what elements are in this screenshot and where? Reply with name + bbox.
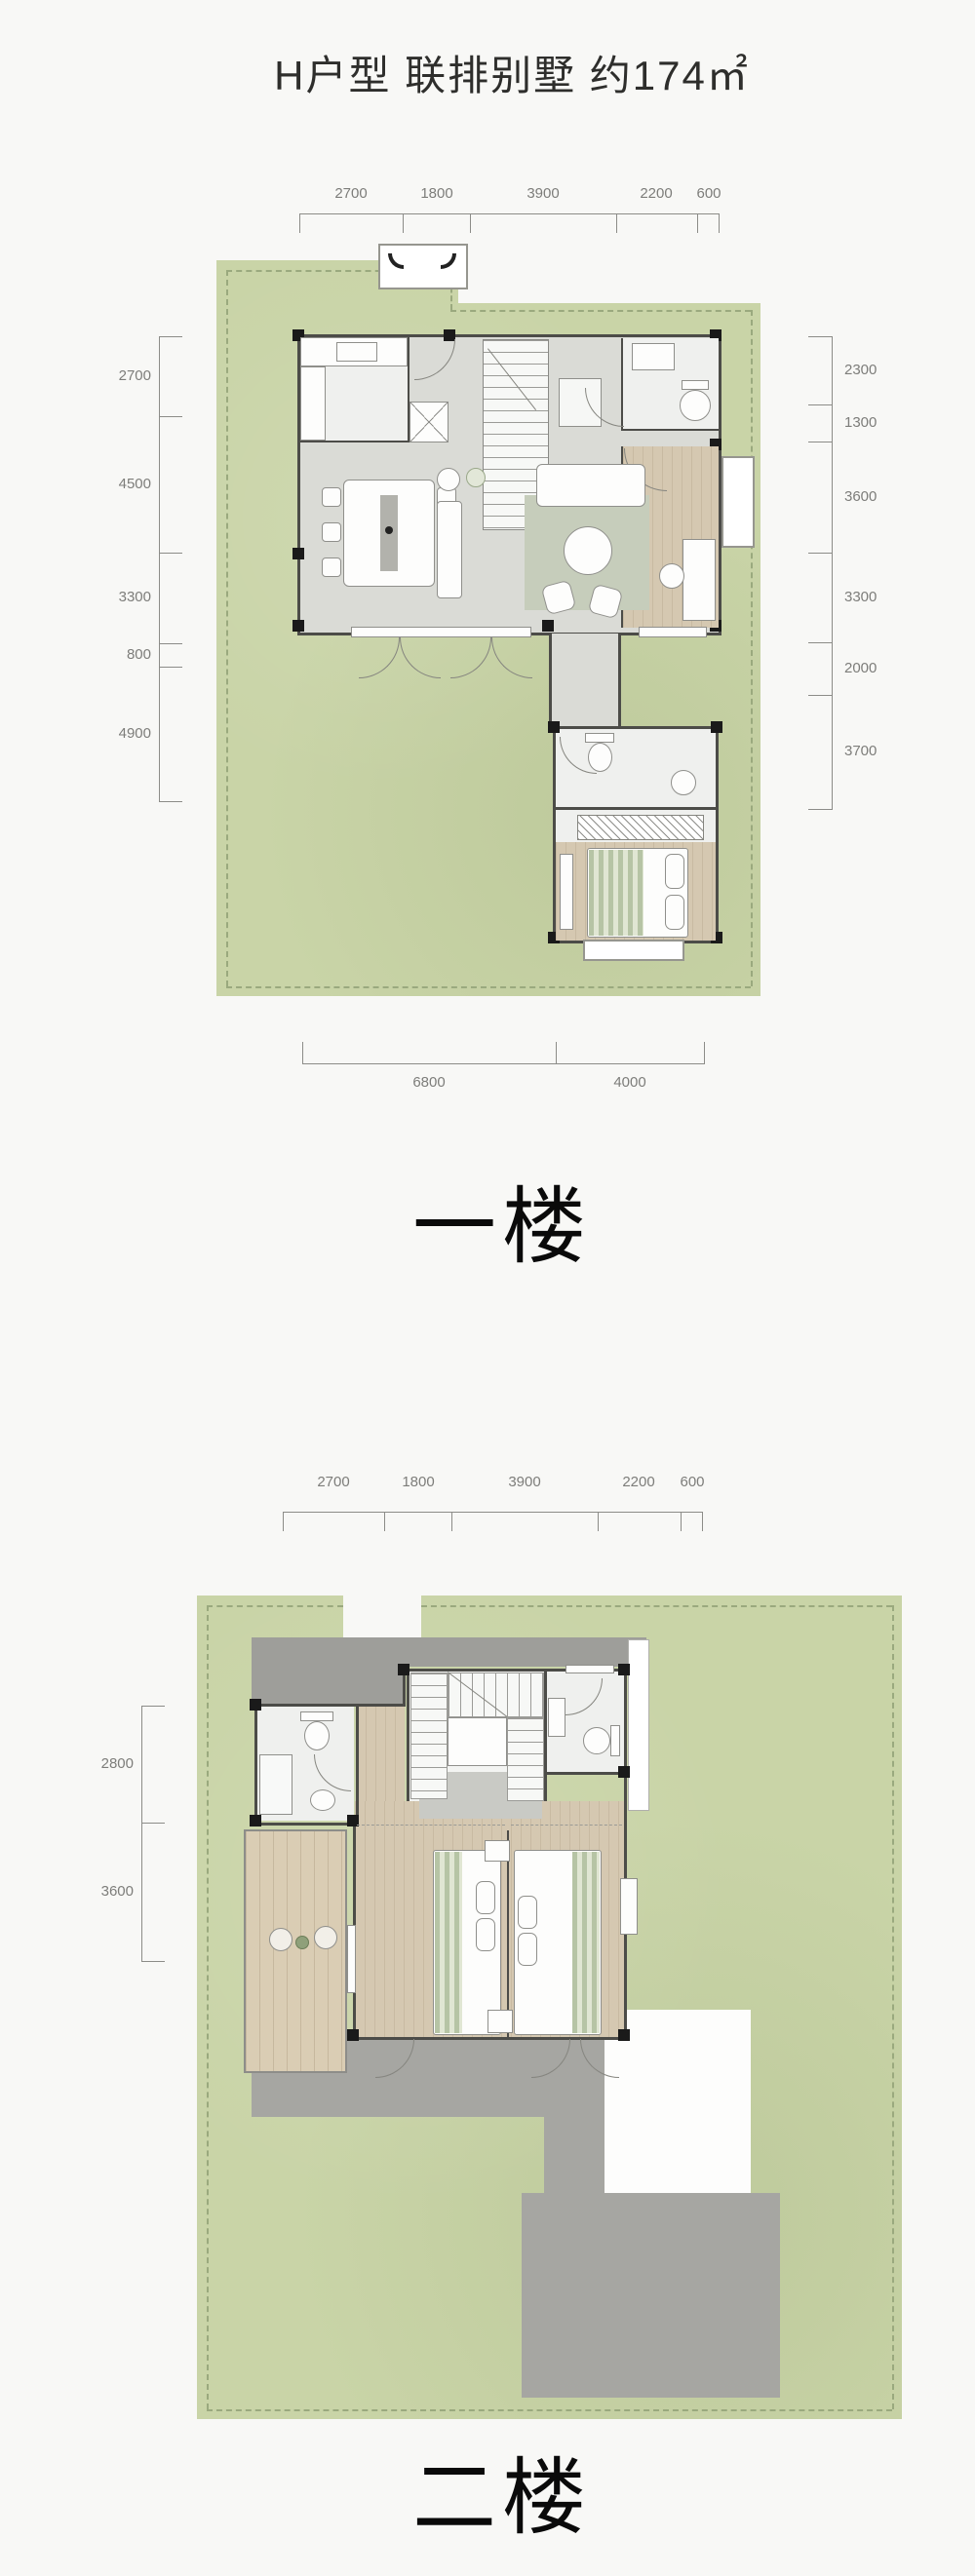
f1-dim-right-1: 2300 [844,362,942,378]
dining-centerpiece [385,526,393,534]
dim-tick [384,1512,385,1531]
toilet [300,1711,333,1721]
f2-stairs-flight [507,1717,544,1801]
f1-study-baywindow [721,456,755,548]
floor1-label: 一楼 [29,1158,975,1280]
f1-dim-line-top [299,213,720,214]
dim-tick [808,809,832,810]
f1-dim-right-3: 3600 [844,488,942,505]
f2-roof-upper-left [252,1637,405,1704]
floor2-label: 二楼 [29,2429,975,2551]
window-strip [620,1878,638,1935]
dim-tick [141,1823,165,1824]
window-strip [351,627,531,637]
dim-tick [451,1512,452,1531]
dim-tick [616,213,617,233]
side-sofa [437,501,462,598]
floor1-plan: 2700 1800 3900 2200 600 2700 4500 3300 8… [0,0,975,1267]
f1-dim-left-2: 4500 [54,476,151,492]
desk [682,539,716,621]
tv-cabinet [560,854,573,930]
dim-tick [299,213,300,233]
wall [544,1772,627,1775]
dim-tick [702,1512,703,1531]
f2-stairs-flight [410,1672,448,1799]
f2-dim-left-2: 3600 [36,1883,134,1900]
f1-dim-line-bottom [302,1063,705,1064]
pillow [518,1933,537,1966]
nightstand [487,2010,513,2033]
dim-tick [681,1512,682,1531]
opening-line [357,1825,505,1826]
f2-dim-left-1: 2800 [36,1755,134,1772]
window-strip [565,1665,614,1673]
dim-tick [283,1512,284,1531]
f1-entry-porch [378,244,468,289]
f1-dim-bottom-2: 4000 [581,1074,679,1091]
f2-roof-side [628,1639,649,1811]
wall [254,1704,257,1825]
dim-tick [141,1961,165,1962]
dim-tick [159,801,182,802]
toilet [304,1721,330,1750]
window-strip [347,1925,356,1993]
balcony-pouf [269,1928,292,1951]
nightstand [485,1840,510,1862]
dining-chair [322,522,341,542]
dim-tick [808,336,832,337]
toilet [583,1727,610,1754]
f2-balcony [244,1829,347,2073]
pillow [476,1918,495,1951]
f1-dim-left-3: 3300 [54,589,151,605]
bathroom-sink [548,1698,565,1737]
f2-stairs-landing [448,1717,507,1766]
wardrobe [577,815,704,840]
wall [254,1823,356,1826]
bathroom-sink [671,770,696,795]
f2-garden-border [207,2409,892,2411]
f1-garden-border [226,270,228,986]
dining-chair [322,557,341,577]
f1-dim-top-2: 1800 [388,185,486,202]
bed-blanket [572,1852,600,2033]
f1-dim-right-4: 3300 [844,589,942,605]
wall-column [292,548,304,559]
dim-tick [598,1512,599,1531]
f1-dim-left-5: 4900 [54,725,151,742]
toilet [610,1725,620,1756]
wall [356,1704,359,1825]
f1-dim-top-1: 2700 [302,185,400,202]
coffee-table [564,526,612,575]
wall-column [711,721,722,733]
dim-tick [697,213,698,233]
wall-column [618,1766,630,1778]
wall [254,1704,406,1707]
dim-tick [808,442,832,442]
wall-column [347,2029,359,2041]
bathroom-sink [632,343,675,370]
dim-tick [302,1042,303,1063]
wall-column [250,1699,261,1711]
plant [466,468,486,487]
wall-column [542,620,554,632]
wall [544,1671,547,1801]
dim-tick [808,404,832,405]
f2-dim-line-top [283,1512,703,1513]
dim-tick [808,642,832,643]
dining-chair [322,487,341,507]
dim-tick [719,213,720,233]
suite-bath-wall [556,807,716,810]
f1-dim-left-4: 800 [54,646,151,663]
wall-column [618,2029,630,2041]
f2-garden-border [421,1605,892,1607]
f1-dim-left-1: 2700 [54,367,151,384]
f1-dim-right-5: 2000 [844,660,942,676]
bathroom-sink [310,1789,335,1811]
pillow [476,1881,495,1914]
f1-dim-right-2: 1300 [844,414,942,431]
opening-line [511,1825,622,1826]
side-table [437,468,460,491]
f2-garden-border [892,1605,894,2409]
bed-blanket [589,850,643,936]
toilet [680,390,711,421]
dim-tick [141,1706,165,1707]
balcony-plant [295,1936,309,1949]
f2-roof-lower-big [522,2193,780,2398]
dim-tick [159,667,182,668]
f1-suite-baywindow [583,940,684,961]
kitchen-counter-side [300,366,326,441]
f1-dim-top-5: 600 [660,185,758,202]
dim-tick [159,643,182,644]
f1-corridor [549,634,621,731]
wall-column [618,1664,630,1675]
pillow [665,854,684,889]
wall-column [292,620,304,632]
f1-garden-border [450,310,751,312]
dim-tick [704,1042,705,1063]
toilet [682,380,709,390]
f1-garden-border [751,310,753,986]
dim-tick [470,213,471,233]
dim-tick [159,336,182,337]
kitchen-sink [336,342,377,362]
f1-garden-border [226,986,751,988]
window-strip [639,627,707,637]
f2-roof-upper-right [405,1637,646,1667]
wall-column [398,1664,409,1675]
sofa [536,464,645,507]
pillow [518,1896,537,1929]
shower [259,1754,292,1815]
dim-tick [808,553,832,554]
wall [624,1669,627,2040]
f1-dim-line-right [832,336,833,810]
wall-column [548,721,560,733]
wall-column [250,1815,261,1826]
f2-garden-border [207,1605,209,2409]
f2-dim-top-3: 3900 [476,1474,573,1490]
f2-stairs-flight [448,1672,544,1717]
dim-tick [159,416,182,417]
dim-tick [403,213,404,233]
fridge [409,402,448,442]
dim-tick [808,695,832,696]
f2-dim-top-1: 2700 [285,1474,382,1490]
dim-tick [159,553,182,554]
f1-dim-line-left [159,336,160,802]
f2-dim-line-left [141,1706,142,1962]
f1-garden-notch [458,260,760,303]
f2-dim-top-5: 600 [643,1474,741,1490]
pillow [665,895,684,930]
f2-garden-border [207,1605,343,1607]
bed-blanket [435,1852,462,2033]
wall [407,1671,409,1801]
f2-dim-top-2: 1800 [370,1474,467,1490]
dim-tick [556,1042,557,1063]
desk-chair [659,563,684,589]
balcony-pouf [314,1926,337,1949]
f2-roof-gap [343,1596,421,1637]
f1-dim-right-6: 3700 [844,743,942,759]
f1-dim-top-3: 3900 [494,185,592,202]
f1-dim-bottom-1: 6800 [380,1074,478,1091]
